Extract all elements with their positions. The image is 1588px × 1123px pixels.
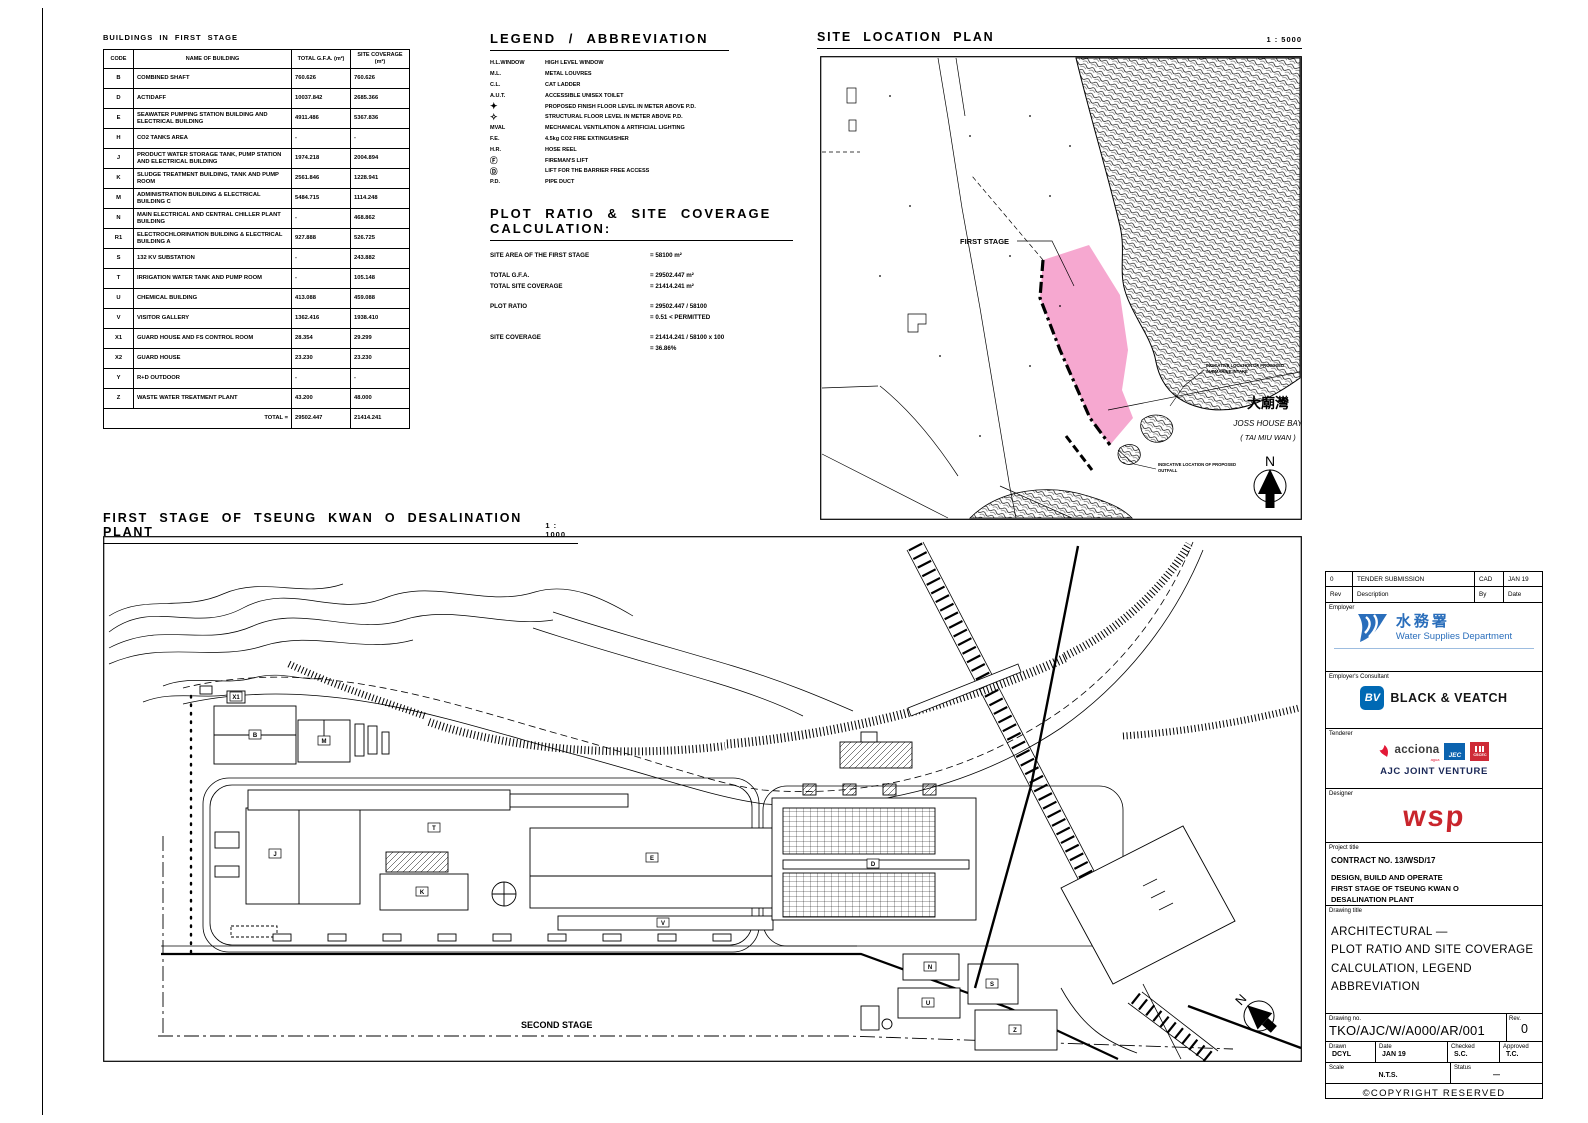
status-label: Status (1451, 1063, 1542, 1071)
calc-label: SITE COVERAGE (490, 334, 650, 341)
calc-label (490, 314, 650, 321)
svg-text:X1: X1 (232, 695, 240, 701)
drawn-label: Drawn (1326, 1042, 1375, 1050)
cell: 105.148 (351, 269, 410, 289)
legend-item: A.U.T.ACCESSIBLE UNISEX TOILET (490, 90, 792, 101)
consultant-label: Employer's Consultant (1326, 672, 1542, 680)
coastline (183, 542, 1203, 805)
svg-text:( TAI MIU WAN ): ( TAI MIU WAN ) (1240, 433, 1296, 442)
title-block: 0 TENDER SUBMISSION CAD JAN 19 Rev Descr… (1325, 571, 1543, 1099)
cell: 2561.846 (292, 169, 351, 189)
level-marker-icon: ✦ (490, 101, 545, 112)
calc-row: PLOT RATIO= 29502.447 / 58100 (490, 303, 793, 310)
legend-key: C.L. (490, 82, 545, 88)
consultant-section: Employer's Consultant BV BLACK & VEATCH (1326, 672, 1542, 729)
employer-name-cn: 水務署 (1396, 614, 1512, 631)
cell: - (292, 249, 351, 269)
table-row: BCOMBINED SHAFT760.626760.626 (104, 69, 410, 89)
total-label: TOTAL = (104, 409, 292, 429)
legend-desc: HOSE REEL (545, 147, 577, 153)
cell: J (104, 149, 134, 169)
legend-item: M.L.METAL LOUVRES (490, 69, 792, 80)
cell: D (104, 89, 134, 109)
date-value: JAN 19 (1376, 1050, 1447, 1058)
sheet-left-border (42, 8, 43, 1115)
project-title-section: Project title CONTRACT NO. 13/WSD/17 DES… (1326, 843, 1542, 906)
svg-text:N: N (1265, 453, 1275, 469)
cell: 1938.410 (351, 309, 410, 329)
cscec-emblem (1475, 746, 1484, 752)
svg-text:U: U (926, 1001, 930, 1007)
cell: X1 (104, 329, 134, 349)
calc-value: = 21414.241 / 58100 x 100 (650, 334, 724, 341)
legend-item: MVALMECHANICAL VENTILATION & ARTIFICIAL … (490, 123, 792, 134)
bv-logo-icon: BV (1360, 686, 1384, 710)
main-site-plan: SECOND STAGE (103, 536, 1302, 1062)
checked-label: Checked (1448, 1042, 1499, 1050)
rev-h: Rev (1326, 587, 1353, 602)
employer-section: Employer 水務署 Water Supplies Department (1326, 603, 1542, 672)
legend-key: F.E. (490, 136, 545, 142)
cscec-text: CSCEC (1473, 753, 1486, 757)
calc-row: = 0.51 < PERMITTED (490, 314, 793, 321)
by-h: By (1475, 587, 1504, 602)
calc-label: TOTAL G.F.A. (490, 272, 650, 279)
drawing-number: TKO/AJC/W/A000/AR/001 (1326, 1023, 1506, 1038)
cell: 2004.894 (351, 149, 410, 169)
legend-item: H.L.WINDOWHIGH LEVEL WINDOW (490, 58, 792, 69)
legend-item: C.L.CAT LADDER (490, 80, 792, 91)
calc-label (490, 345, 650, 352)
svg-text:INDICATIVE LOCATION OF PROPOSE: INDICATIVE LOCATION OF PROPOSED (1206, 363, 1284, 368)
drawing-title-label: Drawing title (1326, 906, 1542, 914)
rev-value: 0 (1507, 1022, 1542, 1036)
cell: - (292, 369, 351, 389)
cell: 23.230 (351, 349, 410, 369)
rev-description: TENDER SUBMISSION (1353, 572, 1475, 586)
col-coverage: SITE COVERAGE (m²) (351, 50, 410, 69)
table-row: UCHEMICAL BUILDING413.088459.088 (104, 289, 410, 309)
legend-list: H.L.WINDOWHIGH LEVEL WINDOW M.L.METAL LO… (490, 58, 792, 188)
cell: - (351, 129, 410, 149)
cell: 4911.486 (292, 109, 351, 129)
employer-label: Employer (1326, 603, 1542, 611)
calc-row: SITE AREA OF THE FIRST STAGE= 58100 m² (490, 252, 793, 259)
approved-label: Approved (1500, 1042, 1542, 1050)
cell: H (104, 129, 134, 149)
cell: 1974.218 (292, 149, 351, 169)
svg-text:B: B (253, 733, 258, 739)
cell: E (104, 109, 134, 129)
employer-name-en: Water Supplies Department (1396, 631, 1512, 642)
calc-value: = 29502.447 m² (650, 272, 694, 279)
col-code: CODE (104, 50, 134, 69)
legend-item: F.E.4.5kg CO2 FIRE EXTINGUISHER (490, 134, 792, 145)
legend-desc: FIREMAN'S LIFT (545, 158, 588, 164)
svg-text:M: M (322, 739, 327, 745)
svg-text:JOSS HOUSE BAY: JOSS HOUSE BAY (1232, 419, 1302, 428)
calc-value: = 29502.447 / 58100 (650, 303, 707, 310)
cell: MAIN ELECTRICAL AND CENTRAL CHILLER PLAN… (134, 209, 292, 229)
scale-label: Scale (1326, 1063, 1450, 1071)
cell: 10037.842 (292, 89, 351, 109)
consultant-name: BLACK & VEATCH (1390, 691, 1507, 705)
jec-logo-icon: JEC (1444, 743, 1465, 760)
calc-value: = 0.51 < PERMITTED (650, 314, 710, 321)
cell: 927.888 (292, 229, 351, 249)
cell: WASTE WATER TREATMENT PLANT (134, 389, 292, 409)
cell: 459.088 (351, 289, 410, 309)
calc-value: = 58100 m² (650, 252, 682, 259)
table-row: TIRRIGATION WATER TANK AND PUMP ROOM-105… (104, 269, 410, 289)
site-location-plan: FIRST STAGE 大廟灣 JOSS HOUSE BAY ( TAI MIU… (820, 56, 1302, 520)
shore-contours (109, 584, 853, 716)
table-row: ZWASTE WATER TREATMENT PLANT43.20048.000 (104, 389, 410, 409)
table-row: KSLUDGE TREATMENT BUILDING, TANK AND PUM… (104, 169, 410, 189)
calc-label: PLOT RATIO (490, 303, 650, 310)
calc-label: SITE AREA OF THE FIRST STAGE (490, 252, 650, 259)
cell: T (104, 269, 134, 289)
table-row: HCO2 TANKS AREA-- (104, 129, 410, 149)
legend-item: H.R.HOSE REEL (490, 144, 792, 155)
drawing-no-label: Drawing no. (1326, 1014, 1506, 1022)
meta-row-1: DrawnDCYL DateJAN 19 CheckedS.C. Approve… (1326, 1042, 1542, 1063)
wsp-logo-icon: wsp (1402, 803, 1466, 832)
second-stage-label: SECOND STAGE (521, 1020, 592, 1030)
buildings-table-section: BUILDINGS IN FIRST STAGE CODE NAME OF BU… (103, 33, 409, 429)
rev-label: Rev. (1507, 1014, 1542, 1022)
svg-text:FIRST STAGE: FIRST STAGE (960, 237, 1009, 246)
table-row: R1ELECTROCHLORINATION BUILDING & ELECTRI… (104, 229, 410, 249)
svg-text:J: J (273, 852, 276, 858)
site-plan-title: SITE LOCATION PLAN (817, 30, 995, 44)
legend-desc: 4.5kg CO2 FIRE EXTINGUISHER (545, 136, 629, 142)
legend-section: LEGEND / ABBREVIATION H.L.WINDOWHIGH LEV… (490, 30, 792, 188)
table-row: JPRODUCT WATER STORAGE TANK, PUMP STATIO… (104, 149, 410, 169)
wsd-logo-icon (1356, 613, 1390, 643)
project-title-label: Project title (1326, 843, 1542, 851)
cell: 28.354 (292, 329, 351, 349)
cell: 5367.836 (351, 109, 410, 129)
project-line: DESALINATION PLANT (1331, 895, 1542, 906)
rev-date: JAN 19 (1504, 572, 1542, 586)
cell: 1362.416 (292, 309, 351, 329)
drawing-number-section: Drawing no. TKO/AJC/W/A000/AR/001 Rev. 0 (1326, 1014, 1542, 1042)
approved-value: T.C. (1500, 1050, 1542, 1058)
cell: GUARD HOUSE (134, 349, 292, 369)
scale-value: N.T.S. (1326, 1071, 1450, 1079)
legend-desc: HIGH LEVEL WINDOW (545, 60, 604, 66)
cell: - (292, 129, 351, 149)
table-row: ESEAWATER PUMPING STATION BUILDING AND E… (104, 109, 410, 129)
drawing-title-line: CALCULATION, LEGEND (1331, 960, 1542, 978)
cell: U (104, 289, 134, 309)
cell: GUARD HOUSE AND FS CONTROL ROOM (134, 329, 292, 349)
legend-key: P.D. (490, 179, 545, 185)
desc-h: Description (1353, 587, 1475, 602)
cell: - (351, 369, 410, 389)
cell: SLUDGE TREATMENT BUILDING, TANK AND PUMP… (134, 169, 292, 189)
cell: CO2 TANKS AREA (134, 129, 292, 149)
revision-header-row: Rev Description By Date (1326, 587, 1542, 602)
svg-text:N: N (928, 965, 932, 971)
cell: PRODUCT WATER STORAGE TANK, PUMP STATION… (134, 149, 292, 169)
cell: Z (104, 389, 134, 409)
svg-text:Z: Z (1013, 1028, 1017, 1034)
contract-number: CONTRACT NO. 13/WSD/17 (1331, 856, 1542, 865)
legend-desc: STRUCTURAL FLOOR LEVEL IN METER ABOVE P.… (545, 114, 683, 120)
svg-text:V: V (661, 921, 665, 927)
legend-desc: PIPE DUCT (545, 179, 574, 185)
cell: S (104, 249, 134, 269)
table-row: NMAIN ELECTRICAL AND CENTRAL CHILLER PLA… (104, 209, 410, 229)
cell: 468.862 (351, 209, 410, 229)
revision-row: 0 TENDER SUBMISSION CAD JAN 19 (1326, 572, 1542, 587)
svg-text:D: D (871, 862, 876, 868)
north-arrow-icon: N (1254, 453, 1286, 508)
svg-text:SUBMARINE INTAKE: SUBMARINE INTAKE (1206, 369, 1248, 374)
table-row: X1GUARD HOUSE AND FS CONTROL ROOM28.3542… (104, 329, 410, 349)
table-row: MADMINISTRATION BUILDING & ELECTRICAL BU… (104, 189, 410, 209)
cell: 29.299 (351, 329, 410, 349)
cell: Y (104, 369, 134, 389)
fireman-lift-icon: Ⓕ (490, 155, 545, 166)
tenderer-label: Tenderer (1326, 729, 1542, 737)
svg-text:S: S (990, 982, 994, 988)
cell: 413.088 (292, 289, 351, 309)
total-gfa: 29502.447 (292, 409, 351, 429)
cell: 243.882 (351, 249, 410, 269)
cell: 526.725 (351, 229, 410, 249)
table-row: YR+D OUTDOOR-- (104, 369, 410, 389)
revision-table: 0 TENDER SUBMISSION CAD JAN 19 Rev Descr… (1326, 572, 1542, 603)
legend-key: H.R. (490, 147, 545, 153)
calc-row: TOTAL G.F.A.= 29502.447 m² (490, 272, 793, 279)
svg-text:OUTFALL: OUTFALL (1158, 468, 1178, 473)
cell: K (104, 169, 134, 189)
cell: B (104, 69, 134, 89)
drawn-value: DCYL (1326, 1050, 1375, 1058)
divider (1334, 648, 1534, 649)
cell: COMBINED SHAFT (134, 69, 292, 89)
legend-key: M.L. (490, 71, 545, 77)
site-plan-titlebar: SITE LOCATION PLAN 1 : 5000 (817, 30, 1302, 49)
main-plan-title: FIRST STAGE OF TSEUNG KWAN O DESALINATIO… (103, 511, 545, 539)
cell: 23.230 (292, 349, 351, 369)
rev-by: CAD (1475, 572, 1504, 586)
cell: R1 (104, 229, 134, 249)
cell: - (292, 209, 351, 229)
barrier-free-lift-icon: Ⓓ (490, 166, 545, 177)
legend-key: A.U.T. (490, 93, 545, 99)
cell: 43.200 (292, 389, 351, 409)
meta-row-2: ScaleN.T.S. Status— (1326, 1063, 1542, 1084)
cell: VISITOR GALLERY (134, 309, 292, 329)
calculation-section: PLOT RATIO & SITE COVERAGE CALCULATION: … (490, 206, 793, 352)
calc-value: = 36.86% (650, 345, 676, 352)
total-coverage: 21414.241 (351, 409, 410, 429)
legend-desc: ACCESSIBLE UNISEX TOILET (545, 93, 623, 99)
vegetation-hatch (289, 544, 1299, 751)
legend-key: MVAL (490, 125, 545, 131)
legend-title: LEGEND / ABBREVIATION (490, 31, 729, 51)
drawing-title-line: ABBREVIATION (1331, 978, 1542, 996)
table-row: DACTIDAFF10037.8422685.366 (104, 89, 410, 109)
cell: - (292, 269, 351, 289)
designer-section: Designer wsp (1326, 789, 1542, 843)
calculation-title: PLOT RATIO & SITE COVERAGE CALCULATION: (490, 206, 793, 241)
legend-desc: LIFT FOR THE BARRIER FREE ACCESS (545, 168, 649, 174)
cell: 760.626 (351, 69, 410, 89)
rev-number: 0 (1326, 572, 1353, 586)
terrain-contours (970, 58, 1300, 518)
cell: R+D OUTDOOR (134, 369, 292, 389)
legend-desc: METAL LOUVRES (545, 71, 592, 77)
legend-desc: CAT LADDER (545, 82, 580, 88)
cell: ADMINISTRATION BUILDING & ELECTRICAL BUI… (134, 189, 292, 209)
cell: V (104, 309, 134, 329)
checked-value: S.C. (1448, 1050, 1499, 1058)
cscec-logo-icon: CSCEC (1470, 742, 1489, 761)
copyright-text: ©COPYRIGHT RESERVED (1326, 1088, 1542, 1099)
site-plan-scale: 1 : 5000 (1266, 35, 1302, 44)
date-h: Date (1504, 587, 1542, 602)
calc-row: = 36.86% (490, 345, 793, 352)
legend-item: ⒻFIREMAN'S LIFT (490, 155, 792, 166)
cell: ACTIDAFF (134, 89, 292, 109)
legend-item: ✦PROPOSED FINISH FLOOR LEVEL IN METER AB… (490, 101, 792, 112)
project-line: DESIGN, BUILD AND OPERATE (1331, 873, 1542, 884)
svg-text:大廟灣: 大廟灣 (1247, 395, 1289, 411)
svg-text:E: E (650, 856, 654, 862)
cell: 2685.366 (351, 89, 410, 109)
cell: X2 (104, 349, 134, 369)
cell: 760.626 (292, 69, 351, 89)
col-name: NAME OF BUILDING (134, 50, 292, 69)
calc-value: = 21414.241 m² (650, 283, 694, 290)
legend-item: P.D.PIPE DUCT (490, 177, 792, 188)
cell: 132 KV SUBSTATION (134, 249, 292, 269)
level-marker-open-icon: ✧ (490, 112, 545, 123)
cell: 1228.941 (351, 169, 410, 189)
cell: CHEMICAL BUILDING (134, 289, 292, 309)
calc-row: TOTAL SITE COVERAGE= 21414.241 m² (490, 283, 793, 290)
svg-text:T: T (432, 826, 436, 832)
table-total-row: TOTAL =29502.44721414.241 (104, 409, 410, 429)
cell: N (104, 209, 134, 229)
acciona-sub: agua (1395, 757, 1440, 762)
table-row: VVISITOR GALLERY1362.4161938.410 (104, 309, 410, 329)
cell: SEAWATER PUMPING STATION BUILDING AND EL… (134, 109, 292, 129)
table-row: X2GUARD HOUSE23.23023.230 (104, 349, 410, 369)
tenderer-section: Tenderer acciona agua JEC CSCEC AJC JOIN… (1326, 729, 1542, 789)
cell: 48.000 (351, 389, 410, 409)
svg-text:K: K (420, 890, 425, 896)
calc-row: SITE COVERAGE= 21414.241 / 58100 x 100 (490, 334, 793, 341)
cell: IRRIGATION WATER TANK AND PUMP ROOM (134, 269, 292, 289)
svg-text:N: N (1232, 991, 1249, 1008)
legend-key: H.L.WINDOW (490, 60, 545, 66)
acciona-logo-icon (1379, 745, 1390, 758)
buildings-table: CODE NAME OF BUILDING TOTAL G.F.A. (m²) … (103, 49, 410, 429)
buildings-table-title: BUILDINGS IN FIRST STAGE (103, 33, 409, 42)
legend-desc: PROPOSED FINISH FLOOR LEVEL IN METER ABO… (545, 104, 696, 110)
drawing-title-line: ARCHITECTURAL — (1331, 923, 1542, 941)
cell: ELECTROCHLORINATION BUILDING & ELECTRICA… (134, 229, 292, 249)
cell: 1114.248 (351, 189, 410, 209)
cell: M (104, 189, 134, 209)
designer-label: Designer (1326, 789, 1542, 797)
project-line: FIRST STAGE OF TSEUNG KWAN O (1331, 884, 1542, 895)
date-label: Date (1376, 1042, 1447, 1050)
tenderer-name: AJC JOINT VENTURE (1326, 766, 1542, 777)
acciona-name: acciona (1395, 744, 1440, 756)
drawing-title-line: PLOT RATIO AND SITE COVERAGE (1331, 941, 1542, 959)
legend-desc: MECHANICAL VENTILATION & ARTIFICIAL LIGH… (545, 125, 685, 131)
col-gfa: TOTAL G.F.A. (m²) (292, 50, 351, 69)
legend-item: ⒹLIFT FOR THE BARRIER FREE ACCESS (490, 166, 792, 177)
legend-item: ✧STRUCTURAL FLOOR LEVEL IN METER ABOVE P… (490, 112, 792, 123)
drawing-title-section: Drawing title ARCHITECTURAL — PLOT RATIO… (1326, 906, 1542, 1014)
cell: 5484.715 (292, 189, 351, 209)
calc-label: TOTAL SITE COVERAGE (490, 283, 650, 290)
svg-text:INDICATIVE LOCATION OF PROPOSE: INDICATIVE LOCATION OF PROPOSED (1158, 462, 1236, 467)
table-header-row: CODE NAME OF BUILDING TOTAL G.F.A. (m²) … (104, 50, 410, 69)
status-value: — (1451, 1071, 1542, 1079)
table-row: S132 KV SUBSTATION-243.882 (104, 249, 410, 269)
